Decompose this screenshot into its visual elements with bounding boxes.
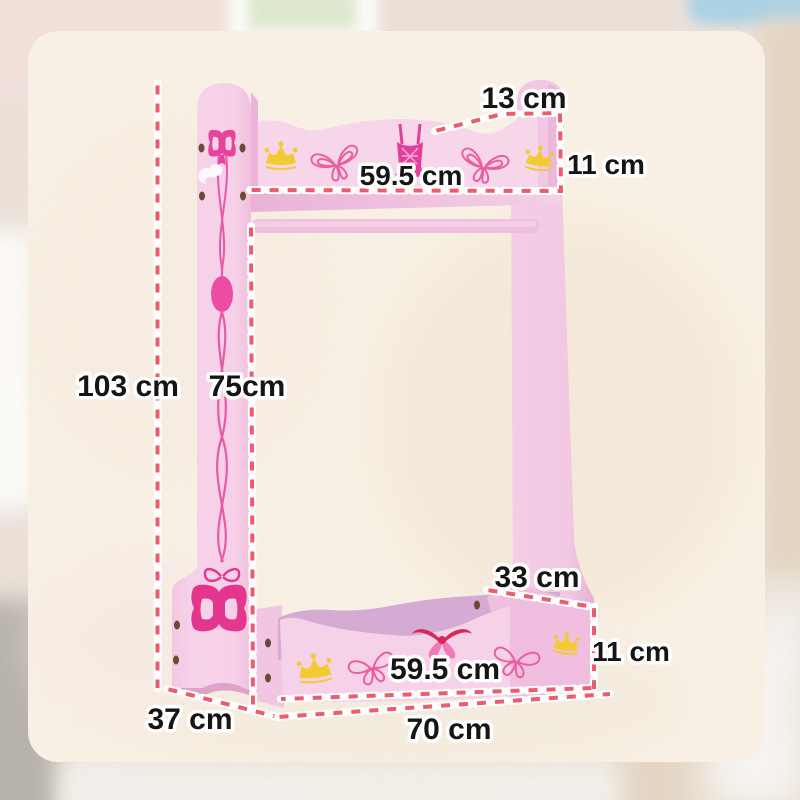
svg-text:37 cm: 37 cm bbox=[147, 703, 232, 736]
svg-text:33 cm: 33 cm bbox=[494, 561, 579, 594]
svg-text:13 cm: 13 cm bbox=[481, 82, 566, 115]
svg-text:59.5 cm: 59.5 cm bbox=[360, 160, 463, 191]
svg-text:11 cm: 11 cm bbox=[567, 149, 645, 180]
svg-text:75cm: 75cm bbox=[209, 370, 286, 403]
svg-text:11 cm: 11 cm bbox=[592, 636, 670, 667]
svg-text:59.5 cm: 59.5 cm bbox=[390, 653, 500, 686]
svg-text:103 cm: 103 cm bbox=[77, 370, 179, 403]
svg-text:70 cm: 70 cm bbox=[406, 713, 491, 746]
